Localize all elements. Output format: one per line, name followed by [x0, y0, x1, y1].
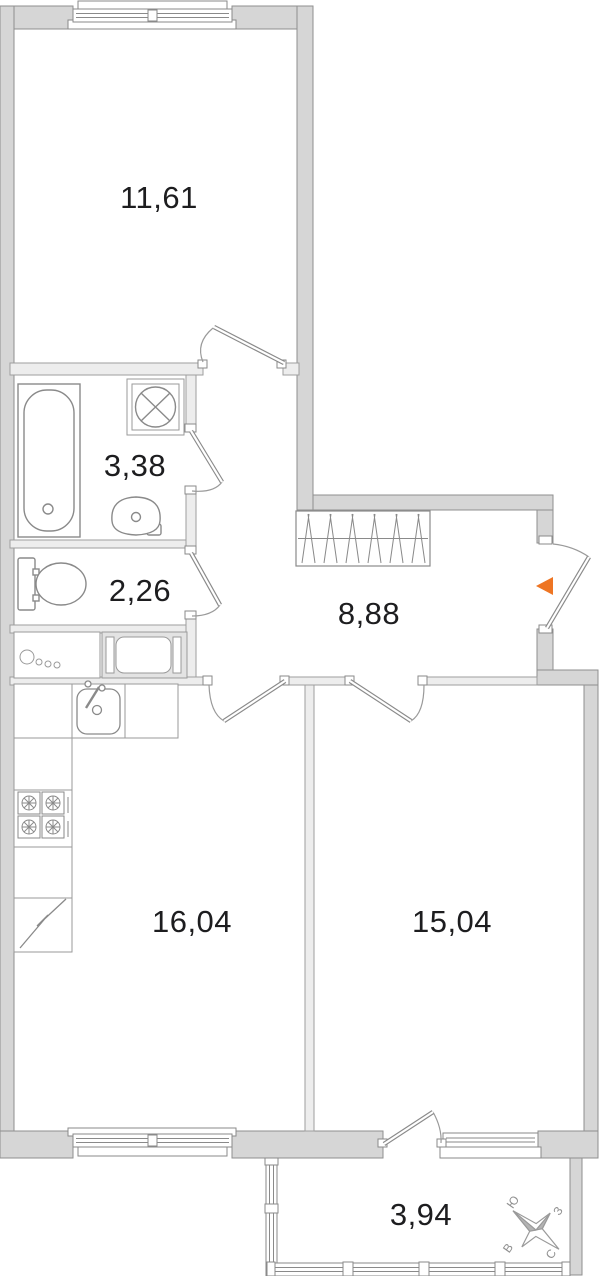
- bathtub: [18, 384, 80, 537]
- compass-east-label: В: [500, 1241, 516, 1256]
- door-leaf-top-room: [214, 327, 284, 363]
- wardrobe: [296, 511, 430, 566]
- compass-rose-icon: Ю З В С: [499, 1193, 573, 1266]
- balcony-glazing-left: [265, 1158, 278, 1276]
- kitchen-niche-counter: [14, 632, 100, 678]
- door-leaf-kitchen: [224, 681, 285, 721]
- floorplan-page: Ю З В С 11,61 3,38 2,26 8,88 16,04 15,04…: [0, 0, 600, 1276]
- kitchen-sink: [77, 681, 120, 734]
- built-in-washer: [102, 632, 187, 678]
- door-arc-balcony: [433, 1112, 441, 1143]
- doors: [185, 327, 589, 1147]
- window-room-right-balcony: [440, 1133, 541, 1158]
- door-leaf-room-right: [350, 681, 411, 721]
- door-leaf-bathroom: [191, 431, 222, 482]
- partition-walls: [10, 363, 537, 1131]
- area-label-hallway: 8,88: [338, 596, 400, 632]
- area-label-kitchen: 16,04: [152, 904, 232, 940]
- area-label-room-right: 15,04: [412, 904, 492, 940]
- bathroom-sink: [112, 497, 161, 535]
- floorplan-drawing: Ю З В С: [0, 0, 600, 1276]
- window-kitchen-bottom: [68, 1128, 236, 1156]
- door-leaf-entrance: [547, 557, 589, 628]
- window-top-room: [68, 1, 236, 29]
- area-label-bathroom: 3,38: [104, 448, 166, 484]
- compass-west-label: З: [550, 1204, 566, 1218]
- door-arc-room-right: [411, 685, 424, 721]
- area-label-balcony: 3,94: [390, 1197, 452, 1233]
- washing-machine-icon: [127, 379, 184, 435]
- entrance-marker-icon: [536, 577, 553, 595]
- door-arc-top-room: [201, 328, 213, 362]
- balcony-glazing-bottom: [267, 1262, 570, 1276]
- compass-south-label: Ю: [504, 1193, 522, 1211]
- door-leaf-wc: [191, 553, 220, 605]
- area-label-top-room: 11,61: [120, 180, 198, 216]
- door-arc-entrance: [553, 544, 589, 557]
- toilet: [18, 558, 86, 610]
- door-leaf-balcony: [384, 1112, 433, 1144]
- area-label-wc: 2,26: [109, 573, 171, 609]
- door-arc-kitchen: [209, 685, 224, 721]
